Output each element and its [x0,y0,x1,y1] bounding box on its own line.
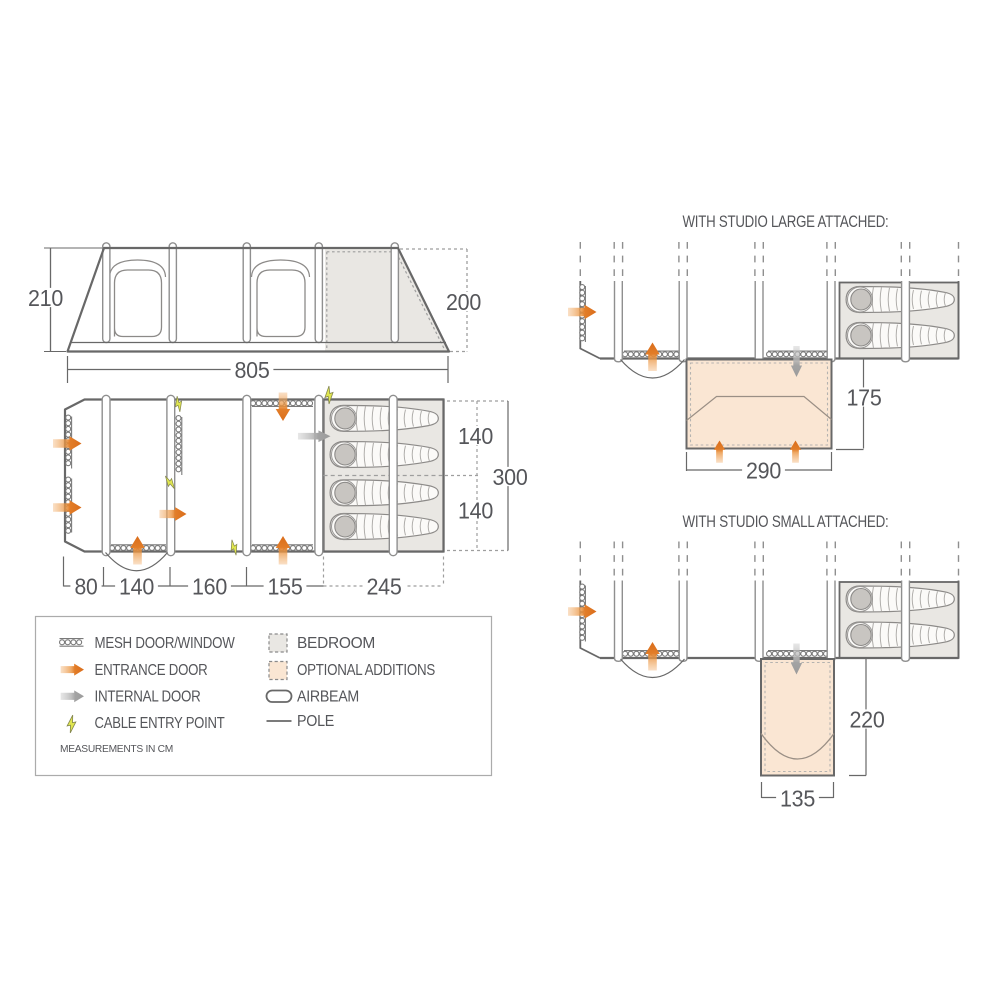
svg-text:300: 300 [493,464,528,490]
svg-text:805: 805 [235,357,270,383]
svg-text:BEDROOM: BEDROOM [297,635,375,652]
svg-text:MESH DOOR/WINDOW: MESH DOOR/WINDOW [95,635,236,652]
svg-text:POLE: POLE [297,713,334,730]
svg-text:OPTIONAL ADDITIONS: OPTIONAL ADDITIONS [297,662,435,679]
svg-text:140: 140 [458,423,493,449]
svg-text:155: 155 [268,574,303,600]
svg-text:200: 200 [446,289,481,315]
svg-text:140: 140 [119,574,154,600]
svg-text:210: 210 [28,285,63,311]
svg-text:MEASUREMENTS IN CM: MEASUREMENTS IN CM [60,744,173,755]
svg-text:175: 175 [847,385,882,411]
svg-text:140: 140 [458,498,493,524]
svg-text:245: 245 [367,574,402,600]
svg-text:WITH STUDIO LARGE ATTACHED:: WITH STUDIO LARGE ATTACHED: [683,212,889,231]
svg-text:AIRBEAM: AIRBEAM [297,689,359,706]
svg-text:220: 220 [850,707,885,733]
svg-text:ENTRANCE DOOR: ENTRANCE DOOR [95,662,208,679]
svg-text:80: 80 [75,574,98,600]
svg-text:CABLE ENTRY POINT: CABLE ENTRY POINT [95,715,225,732]
svg-text:WITH STUDIO SMALL ATTACHED:: WITH STUDIO SMALL ATTACHED: [683,512,889,531]
svg-text:135: 135 [780,786,815,812]
svg-text:INTERNAL DOOR: INTERNAL DOOR [95,689,201,706]
svg-text:290: 290 [746,458,781,484]
svg-text:160: 160 [192,574,227,600]
